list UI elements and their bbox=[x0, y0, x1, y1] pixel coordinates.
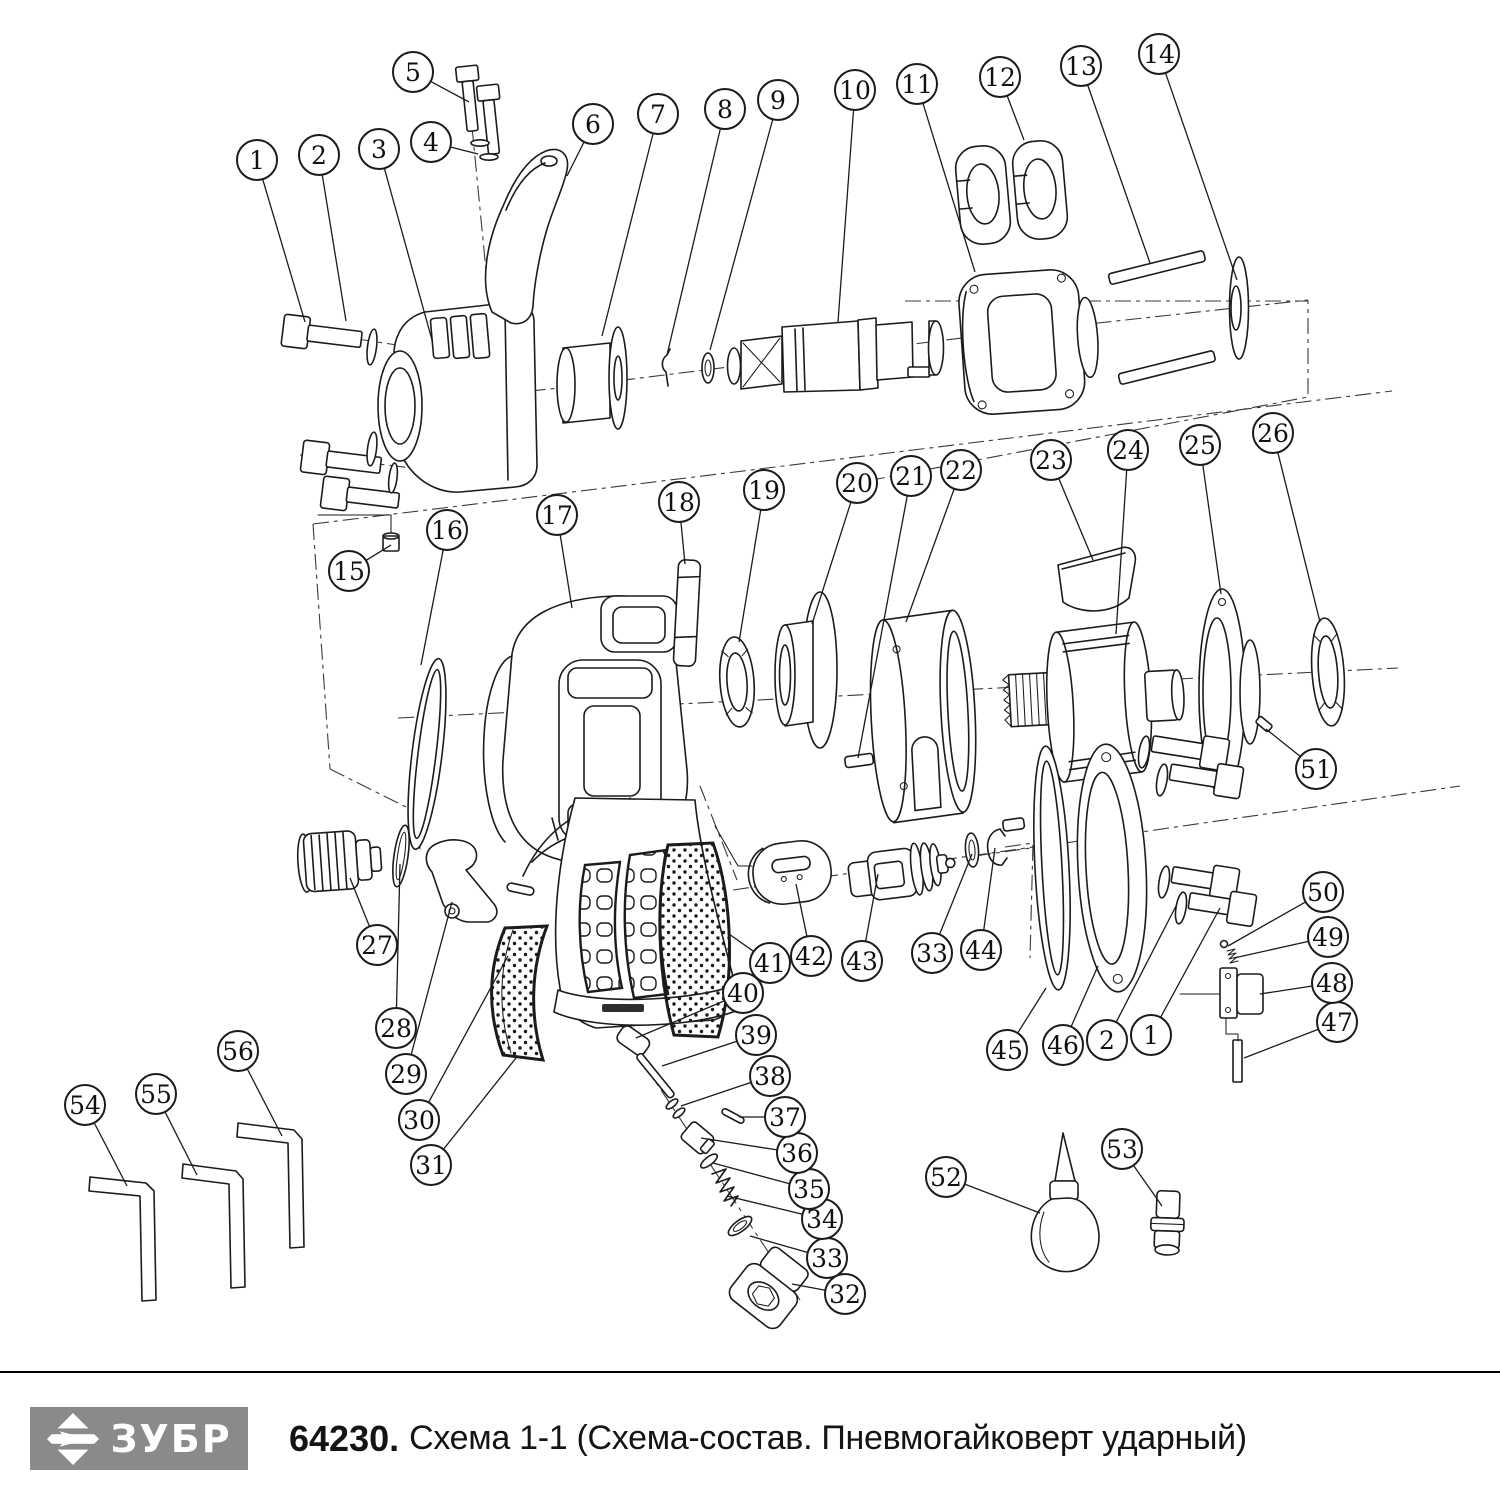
part-bearing bbox=[717, 636, 757, 728]
callout-18: 18 bbox=[659, 482, 699, 564]
svg-text:28: 28 bbox=[380, 1014, 412, 1043]
callout-56: 56 bbox=[218, 1031, 282, 1136]
callout-53: 53 bbox=[1102, 1129, 1162, 1206]
callout-15: 15 bbox=[329, 545, 391, 591]
part-bushing bbox=[557, 327, 627, 429]
part-pin-tiny bbox=[721, 1108, 745, 1125]
part-washer bbox=[1157, 865, 1172, 898]
svg-text:18: 18 bbox=[663, 488, 695, 517]
svg-text:44: 44 bbox=[965, 936, 997, 965]
svg-text:25: 25 bbox=[1184, 431, 1216, 460]
part-bolt bbox=[281, 314, 363, 355]
svg-text:16: 16 bbox=[431, 516, 463, 545]
callout-13: 13 bbox=[1061, 46, 1150, 263]
callout-52: 52 bbox=[926, 1157, 1040, 1213]
part-rotor-vane bbox=[673, 559, 701, 666]
svg-text:43: 43 bbox=[846, 947, 878, 976]
part-grip-pad bbox=[660, 843, 730, 1037]
callout-16: 16 bbox=[421, 510, 467, 665]
part-pin-small bbox=[1002, 818, 1024, 832]
part-lever bbox=[486, 150, 568, 324]
svg-text:19: 19 bbox=[748, 476, 780, 505]
page: 1234567891011121314151617181920212223242… bbox=[0, 0, 1500, 1500]
svg-text:24: 24 bbox=[1112, 436, 1144, 465]
svg-text:52: 52 bbox=[930, 1163, 962, 1192]
svg-text:56: 56 bbox=[222, 1037, 254, 1066]
svg-text:2: 2 bbox=[311, 141, 327, 170]
part-ring bbox=[726, 1213, 755, 1239]
zubr-arrow-icon bbox=[46, 1412, 100, 1466]
part-pin-tiny bbox=[1255, 716, 1272, 732]
svg-text:14: 14 bbox=[1143, 40, 1175, 69]
callout-10: 10 bbox=[835, 70, 875, 322]
svg-text:15: 15 bbox=[333, 557, 365, 586]
callout-8: 8 bbox=[667, 89, 745, 355]
svg-text:40: 40 bbox=[727, 979, 759, 1008]
part-hammer-frame bbox=[957, 267, 1102, 416]
part-hex-key bbox=[182, 1164, 245, 1288]
part-pin bbox=[1118, 350, 1216, 384]
part-ball bbox=[1221, 941, 1228, 948]
part-flat-washer bbox=[480, 154, 498, 160]
zubr-logo-text: ЗУБР bbox=[110, 1420, 231, 1458]
callout-38: 38 bbox=[681, 1056, 790, 1106]
svg-text:30: 30 bbox=[403, 1106, 435, 1135]
callout-1: 1 bbox=[237, 140, 305, 322]
svg-text:33: 33 bbox=[916, 939, 948, 968]
handle-base-marking bbox=[602, 1004, 644, 1012]
part-detent-block bbox=[1220, 968, 1263, 1018]
svg-text:2: 2 bbox=[1099, 1026, 1115, 1055]
zubr-logo: ЗУБР bbox=[30, 1407, 248, 1470]
part-plug bbox=[318, 515, 399, 551]
part-grip-pad bbox=[492, 926, 547, 1060]
svg-text:42: 42 bbox=[795, 942, 827, 971]
exploded-diagram: 1234567891011121314151617181920212223242… bbox=[0, 0, 1500, 1371]
svg-text:54: 54 bbox=[69, 1091, 101, 1120]
svg-text:33: 33 bbox=[811, 1244, 843, 1273]
svg-text:48: 48 bbox=[1316, 969, 1348, 998]
part-valve-body bbox=[745, 837, 835, 908]
svg-text:41: 41 bbox=[754, 949, 786, 978]
part-gasket-ring bbox=[400, 657, 453, 851]
part-air-nipple bbox=[1150, 1190, 1185, 1255]
callout-48: 48 bbox=[1260, 963, 1352, 1003]
part-hammer-dog bbox=[1011, 139, 1069, 241]
assembly-motor bbox=[318, 515, 1348, 876]
part-spring-small bbox=[1227, 949, 1238, 963]
footer: ЗУБР 64230. Схема 1-1 (Схема-состав. Пне… bbox=[0, 1371, 1500, 1500]
svg-text:22: 22 bbox=[945, 456, 977, 485]
part-oil-bottle bbox=[1031, 1133, 1099, 1272]
part-ring bbox=[964, 833, 979, 868]
callout-55: 55 bbox=[136, 1074, 197, 1175]
part-pin-flat bbox=[1233, 1040, 1242, 1082]
svg-text:50: 50 bbox=[1307, 878, 1339, 907]
svg-text:27: 27 bbox=[361, 931, 393, 960]
callout-45: 45 bbox=[987, 988, 1046, 1070]
callout-7: 7 bbox=[602, 94, 678, 336]
callout-26: 26 bbox=[1253, 413, 1320, 622]
svg-text:8: 8 bbox=[717, 95, 733, 124]
part-key bbox=[1058, 547, 1135, 611]
part-end-plate bbox=[775, 592, 837, 748]
part-hammer-assembly bbox=[728, 318, 944, 392]
svg-text:6: 6 bbox=[585, 110, 601, 139]
svg-text:39: 39 bbox=[740, 1021, 772, 1050]
callout-29: 29 bbox=[386, 902, 452, 1094]
witness-line bbox=[715, 826, 752, 866]
diagram-title: Схема 1-1 (Схема-состав. Пневмогайковерт… bbox=[409, 1419, 1247, 1458]
svg-text:21: 21 bbox=[895, 462, 927, 491]
svg-text:45: 45 bbox=[991, 1036, 1023, 1065]
part-clip bbox=[988, 829, 1007, 865]
svg-text:26: 26 bbox=[1257, 419, 1289, 448]
part-flat-washer bbox=[471, 140, 489, 146]
part-handle-panel bbox=[580, 862, 622, 992]
svg-text:47: 47 bbox=[1321, 1008, 1353, 1037]
svg-text:10: 10 bbox=[839, 76, 871, 105]
part-valve-stem bbox=[636, 1052, 675, 1098]
part-washer bbox=[1155, 763, 1170, 796]
part-bearing bbox=[1308, 617, 1347, 727]
part-ring bbox=[699, 1152, 720, 1171]
svg-text:4: 4 bbox=[423, 128, 439, 157]
part-washer bbox=[365, 329, 378, 366]
callout-12: 12 bbox=[980, 57, 1024, 140]
svg-text:11: 11 bbox=[901, 70, 933, 99]
svg-text:1: 1 bbox=[1143, 1021, 1159, 1050]
callout-54: 54 bbox=[65, 1085, 127, 1186]
callout-36: 36 bbox=[701, 1133, 817, 1173]
part-cylinder bbox=[866, 609, 981, 823]
svg-text:3: 3 bbox=[371, 135, 387, 164]
part-pin bbox=[1108, 250, 1206, 284]
part-cover-plate bbox=[1072, 742, 1153, 993]
part-washer bbox=[1174, 891, 1189, 924]
svg-text:35: 35 bbox=[793, 1175, 825, 1204]
diagram-code: 64230. bbox=[289, 1418, 399, 1460]
callout-19: 19 bbox=[739, 470, 784, 642]
callout-2: 2 bbox=[299, 135, 346, 321]
svg-text:5: 5 bbox=[405, 58, 421, 87]
svg-text:29: 29 bbox=[390, 1060, 422, 1089]
part-muffler bbox=[296, 829, 383, 893]
svg-text:12: 12 bbox=[984, 63, 1016, 92]
part-spring bbox=[712, 1169, 738, 1206]
svg-text:49: 49 bbox=[1312, 923, 1344, 952]
svg-text:1: 1 bbox=[249, 146, 265, 175]
callout-37: 37 bbox=[739, 1097, 805, 1137]
part-retaining-clip bbox=[662, 349, 670, 386]
part-washer bbox=[387, 463, 399, 494]
part-valve-seat bbox=[615, 1024, 652, 1058]
svg-text:13: 13 bbox=[1065, 52, 1097, 81]
part-washer-ring bbox=[702, 353, 714, 383]
svg-text:20: 20 bbox=[841, 469, 873, 498]
callout-14: 14 bbox=[1139, 34, 1237, 280]
part-thrust-disc bbox=[1230, 257, 1249, 359]
svg-text:38: 38 bbox=[754, 1062, 786, 1091]
svg-text:17: 17 bbox=[541, 501, 573, 530]
callout-23: 23 bbox=[1031, 440, 1093, 560]
svg-text:46: 46 bbox=[1047, 1031, 1079, 1060]
part-hex-key bbox=[237, 1123, 304, 1248]
svg-text:51: 51 bbox=[1300, 755, 1332, 784]
svg-text:9: 9 bbox=[770, 86, 786, 115]
svg-text:55: 55 bbox=[140, 1080, 172, 1109]
callout-3: 3 bbox=[359, 129, 432, 340]
svg-text:37: 37 bbox=[769, 1103, 801, 1132]
svg-text:53: 53 bbox=[1106, 1135, 1138, 1164]
callout-27: 27 bbox=[350, 878, 397, 965]
part-valve-spool bbox=[846, 839, 958, 904]
part-clutch-housing bbox=[378, 303, 537, 492]
callout-17: 17 bbox=[537, 495, 577, 608]
callout-25: 25 bbox=[1180, 425, 1221, 594]
svg-text:23: 23 bbox=[1035, 446, 1067, 475]
svg-text:32: 32 bbox=[829, 1280, 861, 1309]
part-hex-key bbox=[89, 1177, 156, 1301]
callout-6: 6 bbox=[567, 104, 613, 176]
svg-text:7: 7 bbox=[650, 100, 666, 129]
svg-text:36: 36 bbox=[781, 1139, 813, 1168]
assembly-handle bbox=[89, 728, 1263, 1333]
svg-text:31: 31 bbox=[415, 1151, 447, 1180]
diagram-caption: 64230. Схема 1-1 (Схема-состав. Пневмога… bbox=[289, 1407, 1247, 1470]
callout-35: 35 bbox=[713, 1163, 829, 1209]
callout-51: 51 bbox=[1266, 729, 1336, 789]
part-trigger bbox=[426, 840, 534, 922]
part-o-ring bbox=[390, 824, 412, 887]
